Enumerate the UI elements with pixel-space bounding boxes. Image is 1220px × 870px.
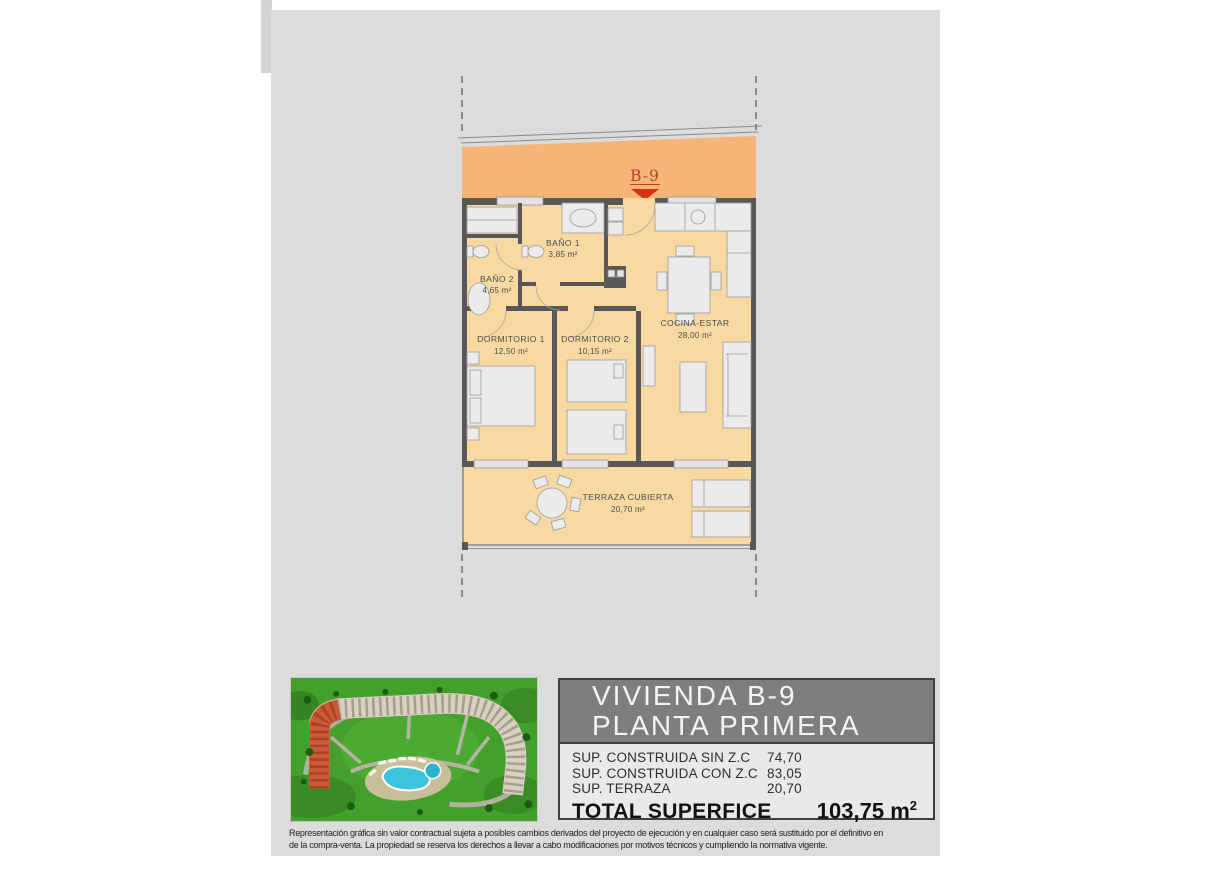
sun-lounger-2 xyxy=(692,511,750,537)
room-label-dormitorio2: DORMITORIO 2 xyxy=(561,334,629,344)
disclaimer-line2: de la compra-venta. La propiedad se rese… xyxy=(289,840,883,852)
total-value: 103,75 m2 xyxy=(817,798,917,824)
total-surface-row: TOTAL SUPERFICE 103,75 m2 xyxy=(572,798,923,824)
room-area-cocina: 28,00 m² xyxy=(678,331,712,340)
disclaimer-line1: Representación gráfica sin valor contrac… xyxy=(289,828,883,840)
surface-value: 74,70 xyxy=(767,750,802,766)
surface-row-sin-zc: SUP. CONSTRUIDA SIN Z.C 74,70 xyxy=(572,750,923,766)
sink-bano1 xyxy=(570,209,596,227)
legal-disclaimer: Representación gráfica sin valor contrac… xyxy=(289,828,883,851)
room-area-terraza: 20,70 m² xyxy=(611,505,645,514)
surface-table: SUP. CONSTRUIDA SIN Z.C 74,70 SUP. CONST… xyxy=(560,744,933,824)
toilet-bano1 xyxy=(522,246,528,257)
chair xyxy=(711,272,721,290)
floor-plan: B-9 xyxy=(440,70,780,615)
info-header: VIVIENDA B-9 PLANTA PRIMERA xyxy=(560,680,933,744)
room-area-dormitorio2: 10,15 m² xyxy=(578,347,612,356)
dining-table xyxy=(668,257,710,313)
surface-value: 20,70 xyxy=(767,781,802,797)
room-label-dormitorio1: DORMITORIO 1 xyxy=(477,334,545,344)
terrace-table xyxy=(537,488,567,518)
unit-title-line1: VIVIENDA B-9 xyxy=(592,681,933,711)
toilet-bano2 xyxy=(467,246,473,257)
brochure-page: B-9 xyxy=(0,0,1220,870)
nightstand xyxy=(467,428,479,440)
nightstand xyxy=(467,352,479,364)
washer xyxy=(608,208,623,221)
surface-label: SUP. CONSTRUIDA CON Z.C xyxy=(572,766,767,782)
info-panel: VIVIENDA B-9 PLANTA PRIMERA SUP. CONSTRU… xyxy=(558,678,935,820)
site-plan-image xyxy=(290,677,538,822)
room-label-cocina: COCINA-ESTAR xyxy=(660,318,729,328)
room-area-bano1: 3,85 m² xyxy=(548,250,577,259)
chair xyxy=(676,246,694,256)
access-edge-line xyxy=(458,126,762,138)
sofa xyxy=(723,342,751,428)
room-label-bano1: BAÑO 1 xyxy=(546,238,580,248)
surface-row-terraza: SUP. TERRAZA 20,70 xyxy=(572,781,923,797)
total-value-superscript: 2 xyxy=(910,798,917,813)
access-band xyxy=(462,136,756,198)
surface-label: SUP. CONSTRUIDA SIN Z.C xyxy=(572,750,767,766)
railing-post xyxy=(750,542,756,550)
unit-title-line2: PLANTA PRIMERA xyxy=(592,711,933,741)
surface-value: 83,05 xyxy=(767,766,802,782)
total-label: TOTAL SUPERFICE xyxy=(572,800,772,824)
room-area-dormitorio1: 12,50 m² xyxy=(494,347,528,356)
room-label-terraza: TERRAZA CUBIERTA xyxy=(582,492,673,502)
tv-unit xyxy=(643,346,655,386)
kitchen-sink xyxy=(691,210,705,224)
pool-shape xyxy=(382,766,429,790)
surface-label: SUP. TERRAZA xyxy=(572,781,767,797)
terrace-chair xyxy=(570,497,581,511)
railing-post xyxy=(462,542,468,550)
surface-row-con-zc: SUP. CONSTRUIDA CON Z.C 83,05 xyxy=(572,766,923,782)
pool-round xyxy=(425,763,441,779)
room-area-bano2: 4,65 m² xyxy=(482,286,511,295)
room-label-bano2: BAÑO 2 xyxy=(480,274,514,284)
chair xyxy=(657,272,667,290)
coffee-table xyxy=(680,362,706,412)
unit-marker-label: B-9 xyxy=(630,167,660,185)
sun-lounger-1 xyxy=(692,480,750,507)
total-value-number: 103,75 m xyxy=(817,798,910,823)
